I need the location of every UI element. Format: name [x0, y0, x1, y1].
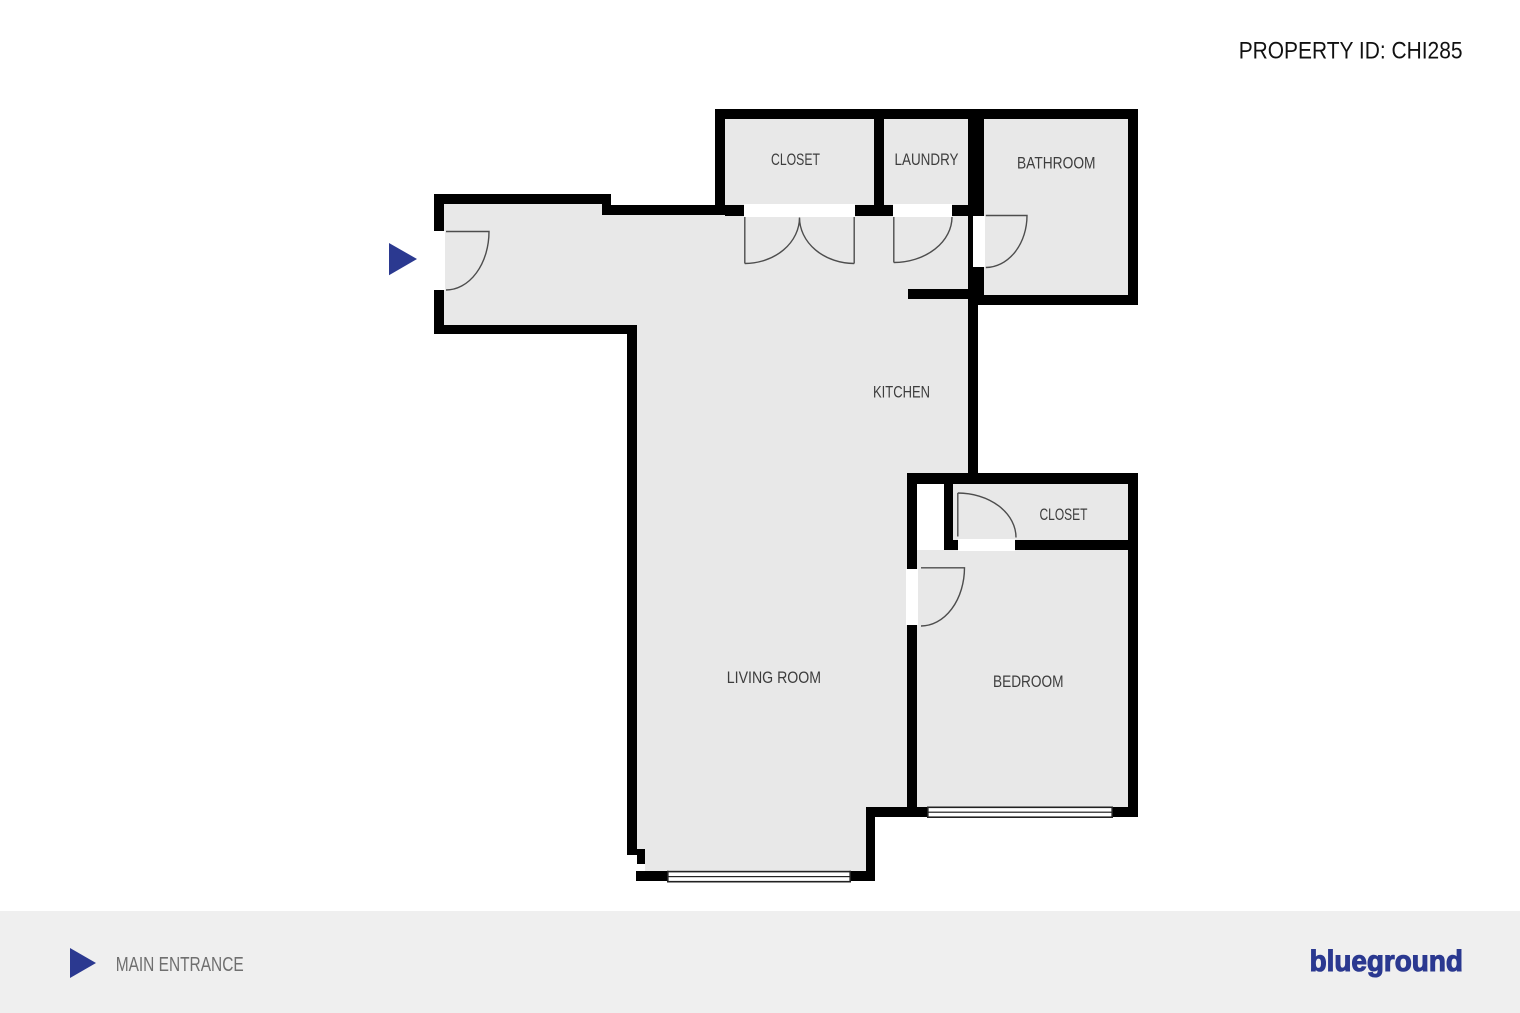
svg-text:LAUNDRY: LAUNDRY: [895, 150, 959, 169]
svg-text:KITCHEN: KITCHEN: [873, 383, 930, 402]
svg-text:BATHROOM: BATHROOM: [1017, 154, 1096, 173]
svg-text:CLOSET: CLOSET: [771, 150, 820, 169]
svg-text:blueground: blueground: [1310, 945, 1463, 978]
svg-text:BEDROOM: BEDROOM: [993, 672, 1064, 691]
svg-text:CLOSET: CLOSET: [1040, 505, 1088, 524]
svg-text:PROPERTY ID: CHI285: PROPERTY ID: CHI285: [1239, 38, 1463, 65]
svg-text:MAIN ENTRANCE: MAIN ENTRANCE: [116, 954, 244, 976]
svg-text:LIVING ROOM: LIVING ROOM: [727, 668, 821, 687]
